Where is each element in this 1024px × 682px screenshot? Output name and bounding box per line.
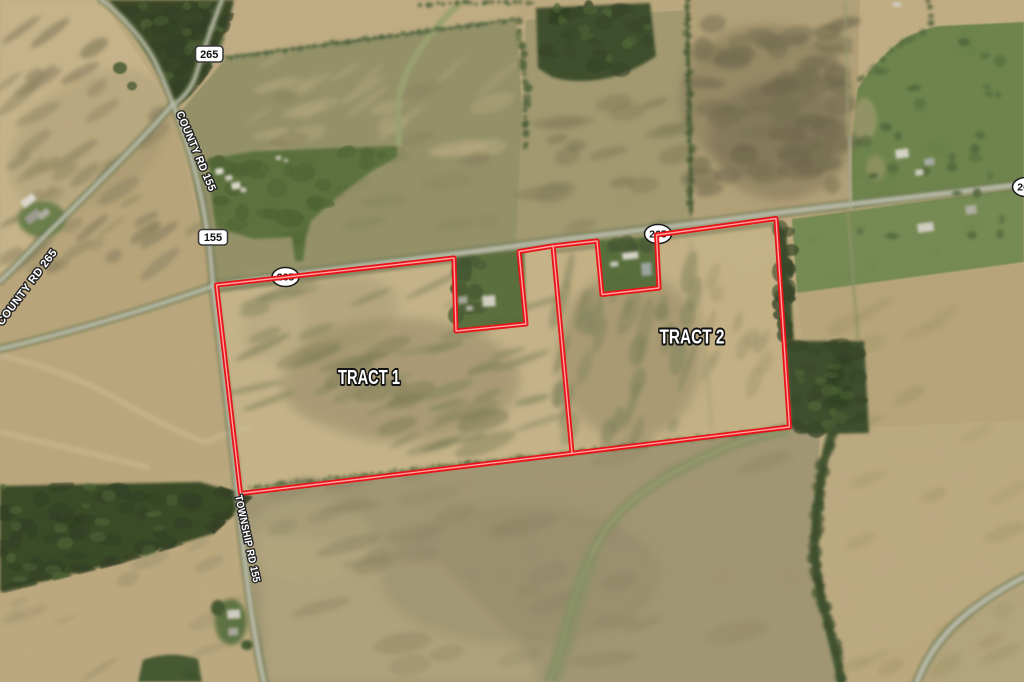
svg-text:TRACT 1: TRACT 1 [338,367,400,389]
svg-text:265: 265 [200,49,218,61]
svg-text:265: 265 [1017,182,1024,194]
svg-text:TRACT 2: TRACT 2 [660,327,725,349]
svg-text:155: 155 [204,232,222,244]
